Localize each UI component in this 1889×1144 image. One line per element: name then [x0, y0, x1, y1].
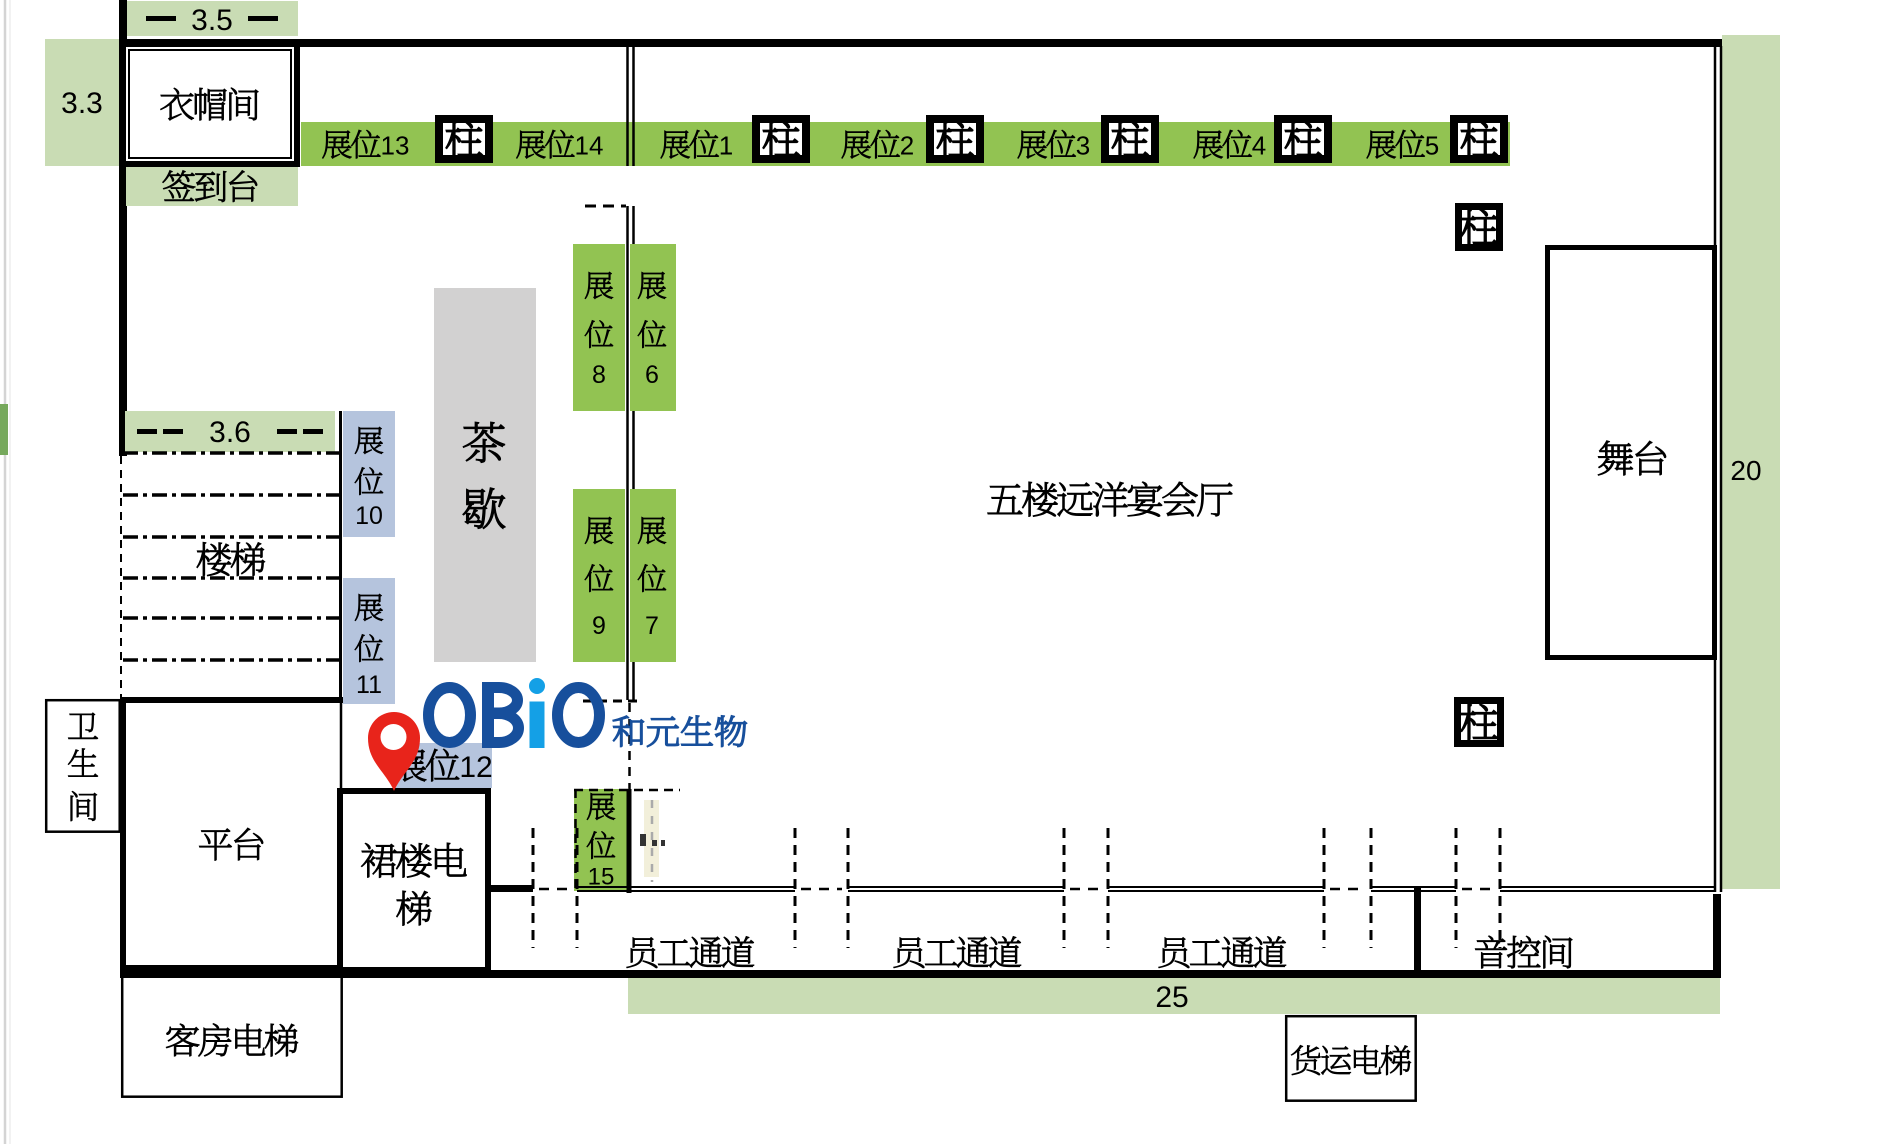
svg-text:25: 25 — [1155, 981, 1188, 1014]
svg-text:8: 8 — [592, 361, 606, 389]
svg-text:3.3: 3.3 — [61, 87, 103, 120]
svg-text:6: 6 — [645, 361, 659, 389]
svg-text:3.6: 3.6 — [209, 416, 251, 449]
svg-text:20: 20 — [1730, 455, 1761, 486]
svg-text:12: 12 — [459, 751, 492, 784]
svg-text:4: 4 — [1252, 130, 1266, 160]
svg-text:10: 10 — [355, 502, 383, 530]
svg-text:5: 5 — [1425, 130, 1439, 160]
svg-text:7: 7 — [645, 612, 659, 640]
svg-text:14: 14 — [575, 130, 604, 160]
svg-text:11: 11 — [356, 671, 382, 699]
svg-text:13: 13 — [381, 130, 410, 160]
svg-text:3: 3 — [1076, 130, 1090, 160]
svg-text:1: 1 — [719, 130, 733, 160]
svg-text:3.5: 3.5 — [191, 4, 233, 37]
svg-text:9: 9 — [592, 612, 606, 640]
svg-text:2: 2 — [900, 130, 914, 160]
